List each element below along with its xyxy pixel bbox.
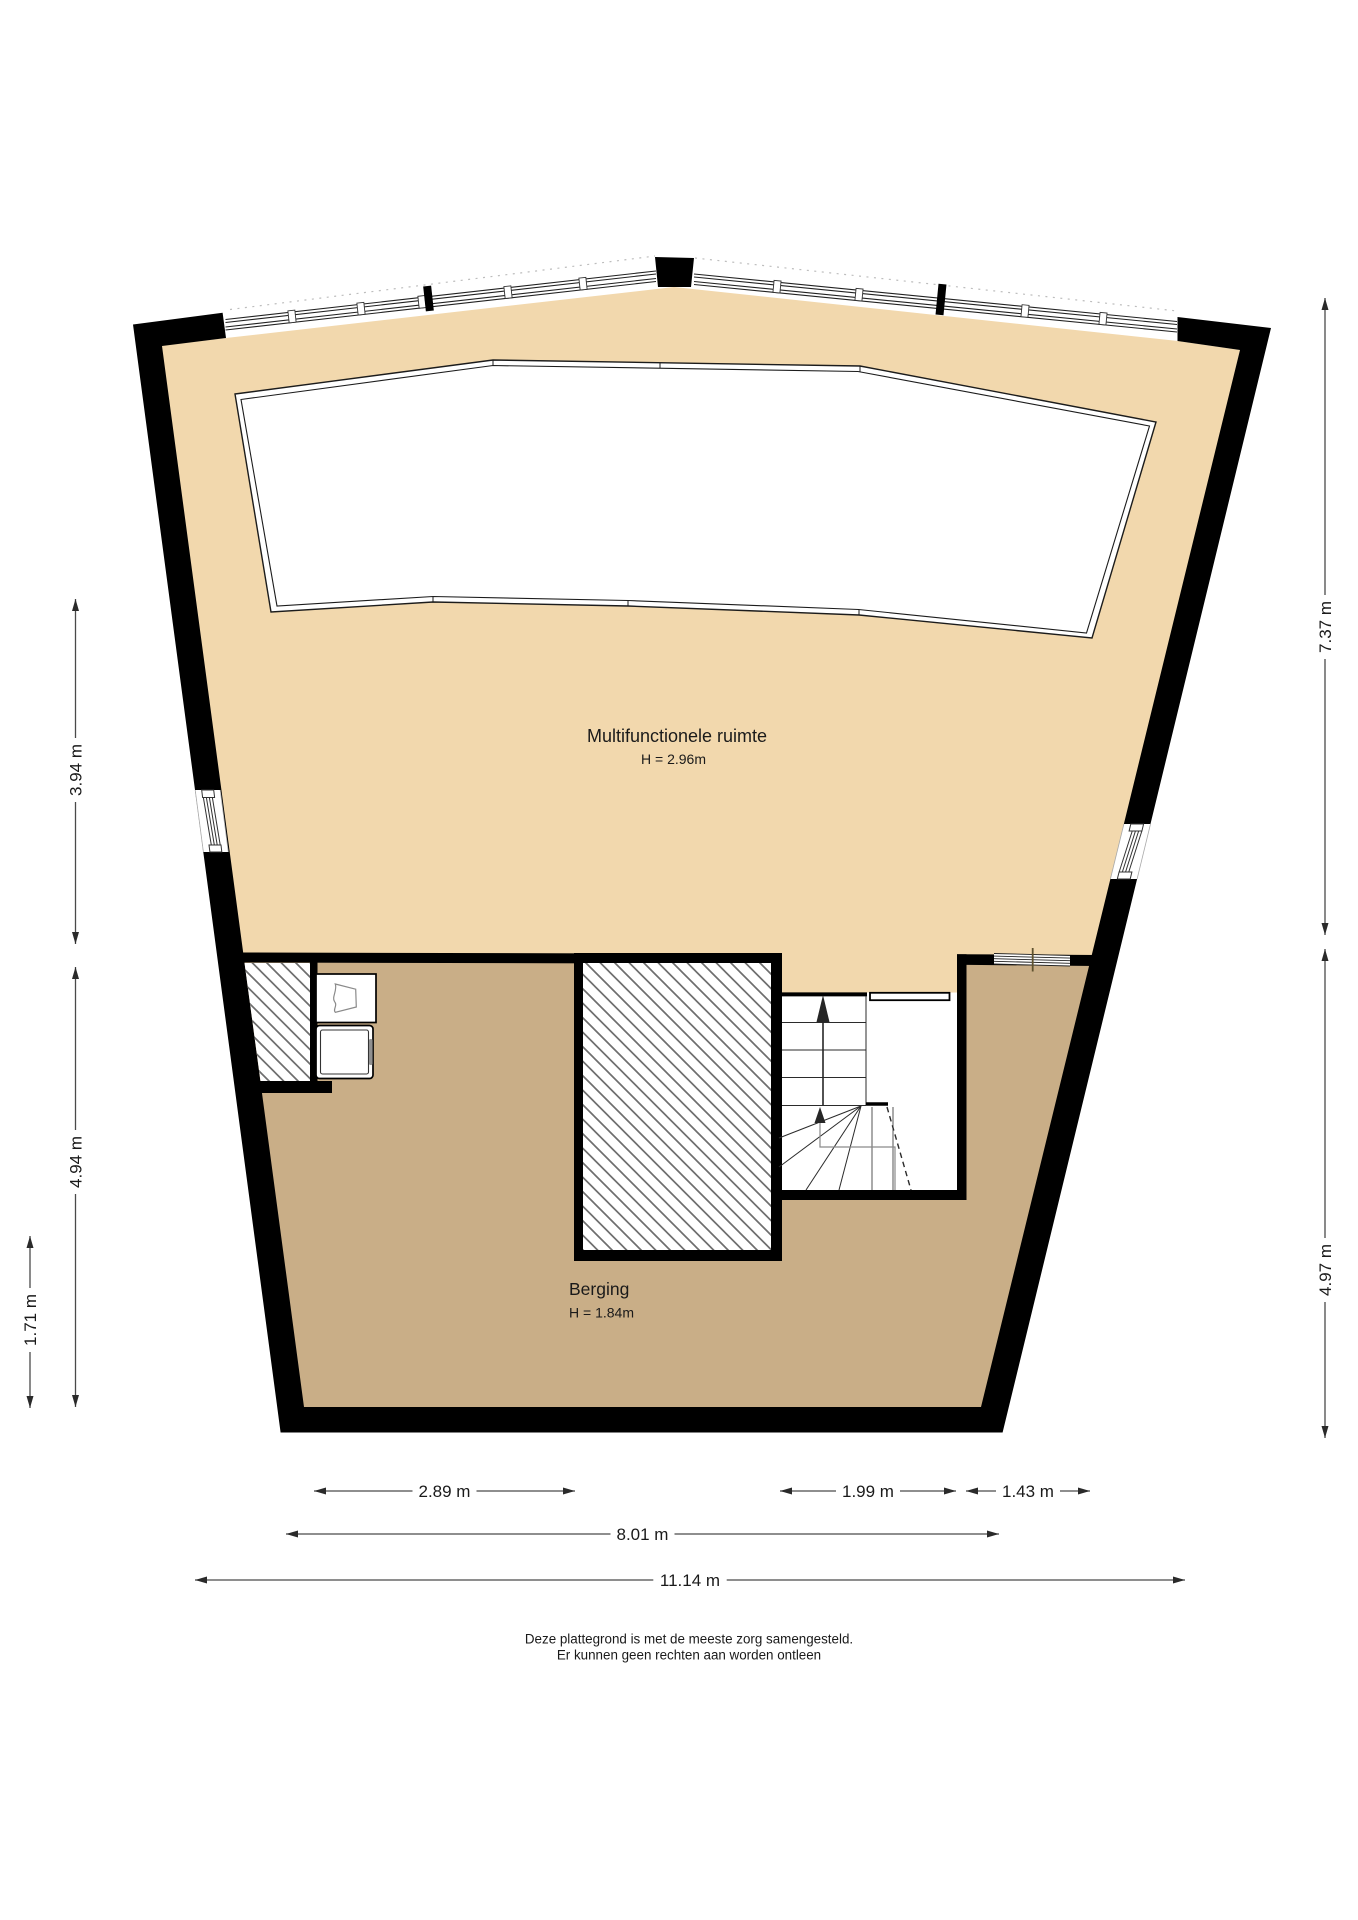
svg-text:1.99 m: 1.99 m <box>842 1482 894 1501</box>
svg-text:2.89 m: 2.89 m <box>419 1482 471 1501</box>
svg-text:1.43 m: 1.43 m <box>1002 1482 1054 1501</box>
svg-text:4.94 m: 4.94 m <box>67 1136 86 1188</box>
svg-text:3.94 m: 3.94 m <box>67 744 86 796</box>
svg-text:8.01 m: 8.01 m <box>617 1525 669 1544</box>
svg-text:H = 1.84m: H = 1.84m <box>569 1305 634 1321</box>
svg-text:7.37 m: 7.37 m <box>1316 601 1335 653</box>
svg-text:H = 2.96m: H = 2.96m <box>641 751 706 767</box>
svg-text:Berging: Berging <box>569 1279 629 1299</box>
svg-text:11.14 m: 11.14 m <box>660 1571 720 1590</box>
svg-text:1.71 m: 1.71 m <box>21 1294 40 1346</box>
svg-text:4.97 m: 4.97 m <box>1316 1244 1335 1296</box>
svg-text:Er kunnen geen rechten aan wor: Er kunnen geen rechten aan worden ontlee… <box>557 1648 821 1663</box>
svg-text:Deze plattegrond is met de mee: Deze plattegrond is met de meeste zorg s… <box>525 1632 853 1647</box>
svg-text:Multifunctionele ruimte: Multifunctionele ruimte <box>587 726 767 746</box>
